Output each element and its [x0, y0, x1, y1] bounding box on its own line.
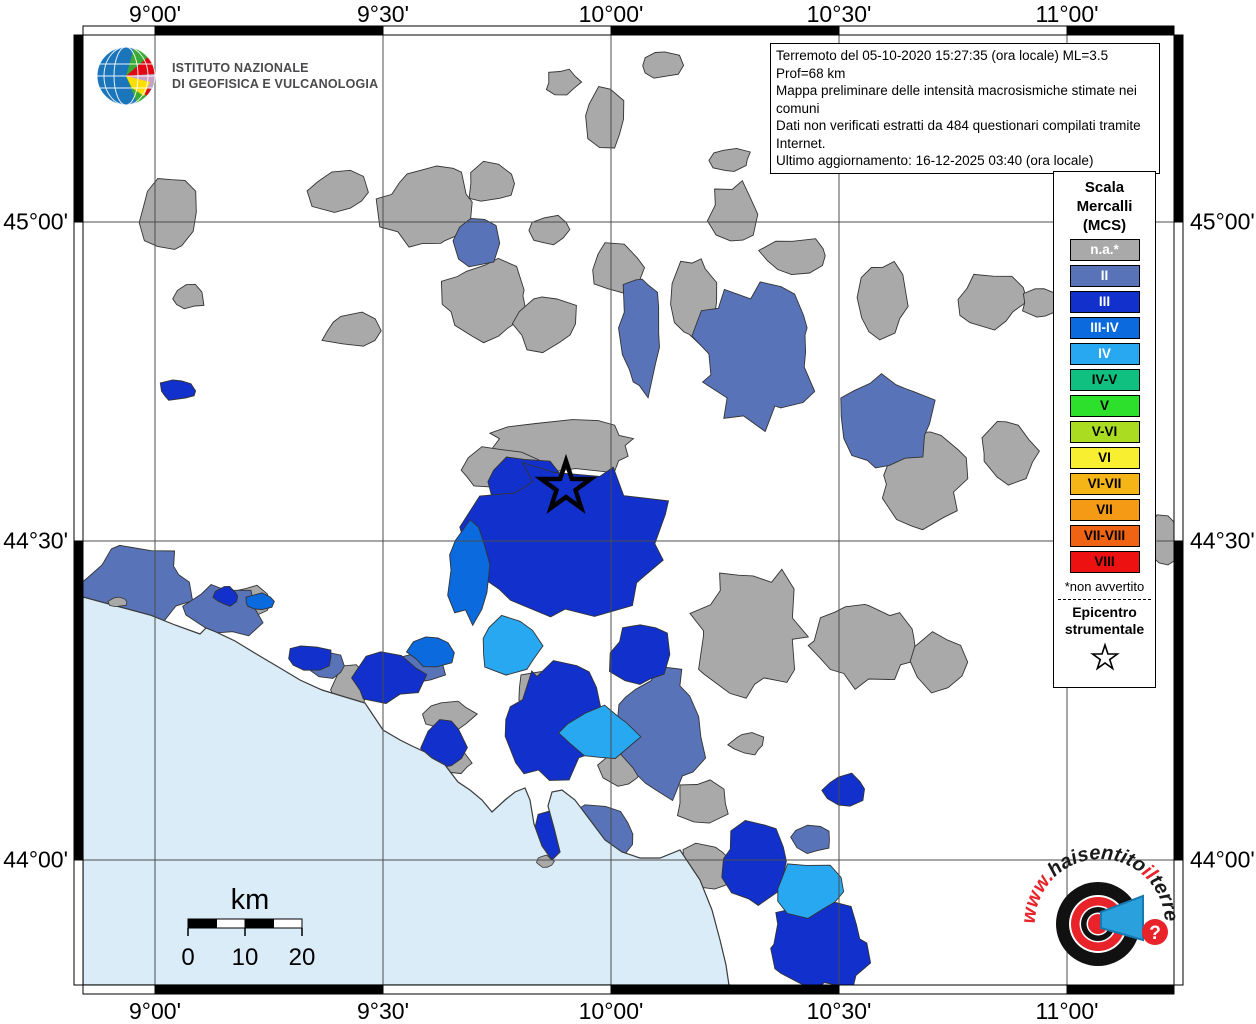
lat-label-left: 45°00': [0, 209, 68, 236]
frame-segment-right: [1174, 222, 1183, 541]
frame-segment-left: [74, 222, 83, 541]
legend-swatch-VI: VI: [1070, 447, 1140, 469]
ingv-line2: DI GEOFISICA E VULCANOLOGIA: [172, 76, 378, 92]
legend-swatch-V-VI: V-VI: [1070, 421, 1140, 443]
frame-segment-top: [611, 26, 839, 35]
legend-swatch-VIII: VIII: [1070, 551, 1140, 573]
info-line-2: Mappa preliminare delle intensità macros…: [776, 82, 1154, 117]
legend-swatch-IV-V: IV-V: [1070, 369, 1140, 391]
scale-bar-tick-labels: 01020: [170, 944, 330, 970]
info-line-1: Terremoto del 05-10-2020 15:27:35 (ora l…: [776, 47, 1154, 82]
lat-label-right: 44°30': [1190, 528, 1255, 555]
earthquake-info-box: Terremoto del 05-10-2020 15:27:35 (ora l…: [770, 43, 1160, 174]
frame-segment-bottom: [83, 985, 155, 994]
legend-swatch-n.a.*: n.a.*: [1070, 239, 1140, 261]
legend-swatch-IV: IV: [1070, 343, 1140, 365]
lon-label-top: 9°30': [357, 1, 409, 28]
lon-label-bottom: 9°00': [129, 998, 181, 1024]
epicenter-label-line1: Epicentro: [1054, 604, 1155, 621]
legend-swatch-VII-VIII: VII-VIII: [1070, 525, 1140, 547]
municipality-region-III: [722, 821, 787, 906]
frame-segment-bottom: [383, 985, 611, 994]
intensity-legend: Scala Mercalli (MCS) n.a.*IIIIIIII-IVIVI…: [1053, 171, 1156, 688]
frame-segment-top: [839, 26, 1067, 35]
lon-label-top: 10°30': [807, 1, 872, 28]
ingv-globe-icon: [96, 44, 160, 108]
municipality-region-na: [643, 52, 684, 78]
legend-swatch-III-IV: III-IV: [1070, 317, 1140, 339]
lon-label-bottom: 9°30': [357, 998, 409, 1024]
ingv-logo: ISTITUTO NAZIONALE DI GEOFISICA E VULCAN…: [96, 44, 378, 108]
legend-title-line3: (MCS): [1054, 216, 1155, 235]
scale-tick-label: 10: [232, 944, 259, 972]
legend-title-line1: Scala: [1054, 178, 1155, 197]
legend-separator: [1058, 599, 1151, 600]
frame-segment-top: [383, 26, 611, 35]
lon-label-top: 9°00': [129, 1, 181, 28]
frame-segment-bottom: [611, 985, 839, 994]
legend-items: n.a.*IIIIIIII-IVIVIV-VVV-VIVIVI-VIIVIIVI…: [1054, 239, 1155, 573]
lon-label-top: 11°00': [1035, 1, 1098, 28]
lat-label-right: 44°00': [1190, 847, 1255, 874]
lon-label-bottom: 11°00': [1035, 998, 1098, 1024]
frame-segment-right: [1174, 541, 1183, 860]
legend-swatch-VI-VII: VI-VII: [1070, 473, 1140, 495]
frame-segment-left: [74, 35, 83, 222]
info-line-4: Ultimo aggiornamento: 16-12-2025 03:40 (…: [776, 152, 1154, 170]
macroseismic-map-page: { "info_box": { "lines": [ "Terremoto de…: [0, 0, 1256, 1024]
scale-unit-label: km: [170, 884, 330, 917]
map-scale-bar: km 01020: [170, 884, 330, 970]
legend-swatch-VII: VII: [1070, 499, 1140, 521]
legend-title-line2: Mercalli: [1054, 197, 1155, 216]
frame-segment-left: [74, 860, 83, 985]
logo-question-mark: ?: [1149, 923, 1161, 944]
ingv-line1: ISTITUTO NAZIONALE: [172, 60, 378, 76]
lon-label-bottom: 10°30': [807, 998, 872, 1024]
legend-footnote: *non avvertito: [1054, 579, 1155, 594]
legend-swatch-III: III: [1070, 291, 1140, 313]
frame-segment-right: [1174, 35, 1183, 222]
municipality-region-na: [678, 780, 729, 823]
lat-label-left: 44°30': [0, 528, 68, 555]
ingv-wordmark: ISTITUTO NAZIONALE DI GEOFISICA E VULCAN…: [172, 60, 378, 92]
lat-label-right: 45°00': [1190, 209, 1255, 236]
scale-tick-label: 0: [181, 944, 194, 972]
frame-segment-bottom: [155, 985, 383, 994]
legend-swatch-V: V: [1070, 395, 1140, 417]
legend-swatch-II: II: [1070, 265, 1140, 287]
haisentitoilterremoto-logo[interactable]: ? www.haisentitoilterremoto.it: [1015, 836, 1185, 1006]
lon-label-top: 10°00': [579, 1, 644, 28]
epicenter-label-line2: strumentale: [1054, 621, 1155, 638]
frame-segment-left: [74, 541, 83, 860]
epicenter-star-icon: [1088, 642, 1122, 674]
lat-label-left: 44°00': [0, 847, 68, 874]
info-line-3: Dati non verificati estratti da 484 ques…: [776, 117, 1154, 152]
scale-tick-label: 20: [289, 944, 316, 972]
scale-bar-graphic: [170, 917, 330, 939]
lon-label-bottom: 10°00': [579, 998, 644, 1024]
frame-segment-top: [155, 26, 383, 35]
